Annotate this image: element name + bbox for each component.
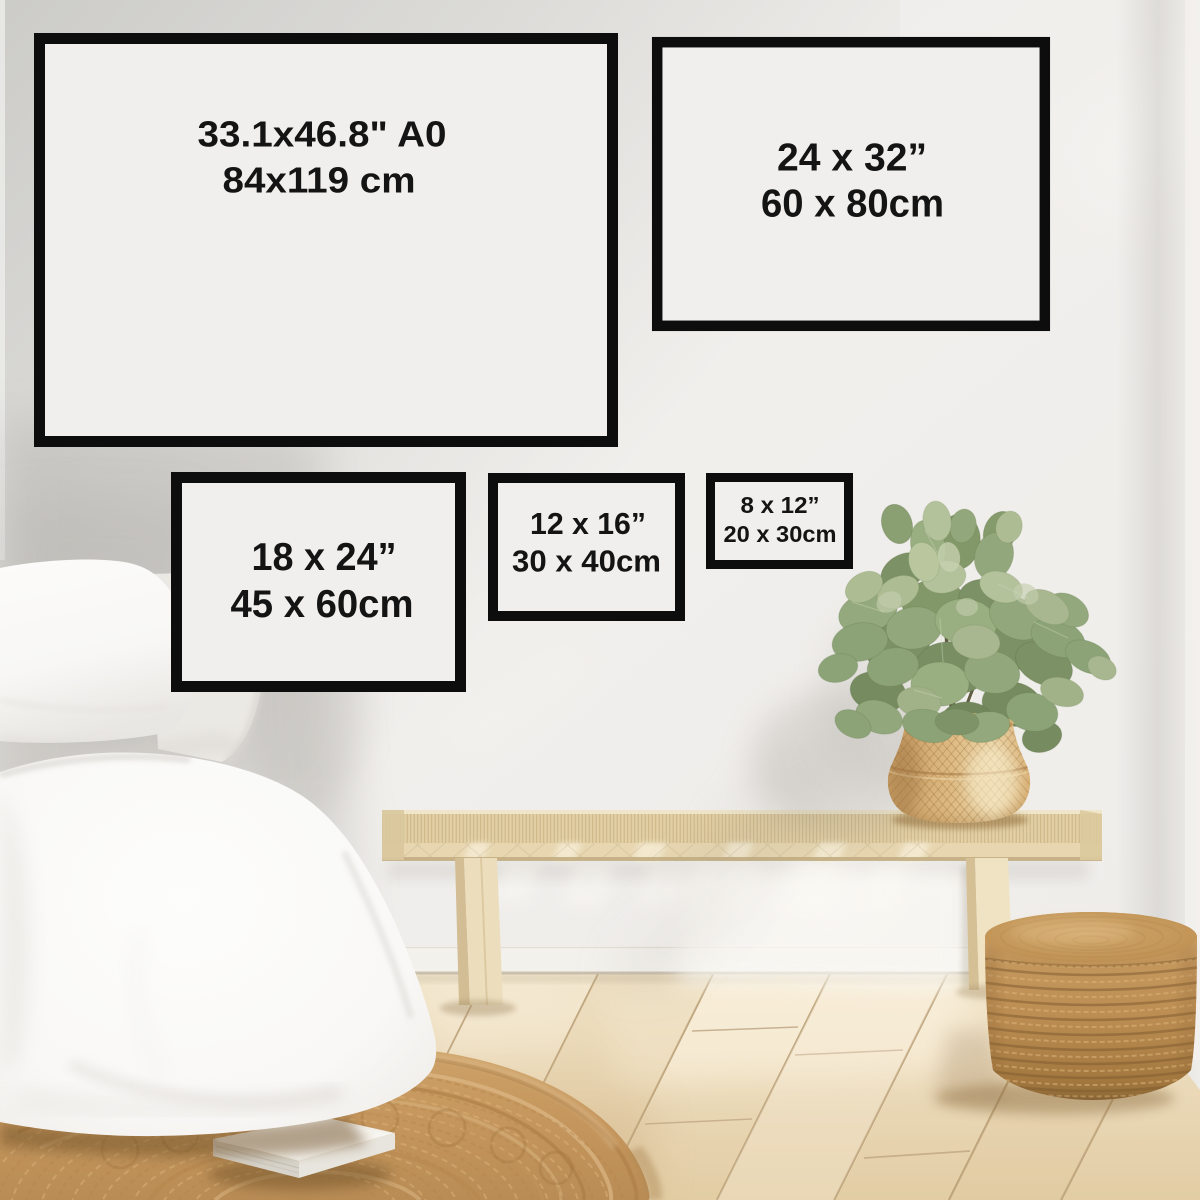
svg-text:20 x 30cm: 20 x 30cm [724, 521, 837, 547]
svg-text:18 x 24”: 18 x 24” [252, 536, 397, 579]
svg-text:84x119 cm: 84x119 cm [223, 160, 416, 201]
svg-text:8 x 12”: 8 x 12” [741, 492, 820, 518]
svg-text:30 x 40cm: 30 x 40cm [512, 544, 661, 578]
svg-text:12 x 16”: 12 x 16” [530, 507, 646, 541]
svg-text:24 x 32”: 24 x 32” [777, 137, 927, 180]
svg-text:45 x 60cm: 45 x 60cm [231, 583, 414, 626]
svg-text:60 x 80cm: 60 x 80cm [761, 183, 944, 226]
svg-text:33.1x46.8" A0: 33.1x46.8" A0 [198, 113, 447, 154]
